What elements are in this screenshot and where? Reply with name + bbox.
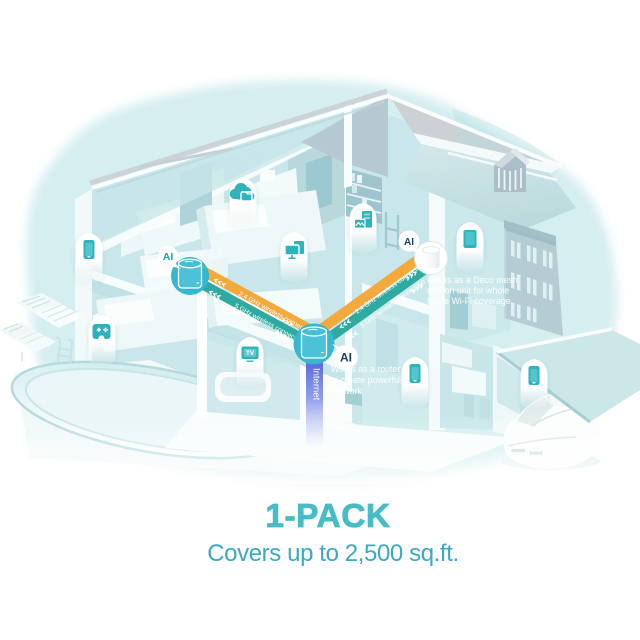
svg-text:network: network (331, 386, 362, 396)
svg-text:Covers up to 2,500 sq.ft.: Covers up to 2,500 sq.ft. (207, 540, 458, 567)
svg-text:Internet: Internet (311, 368, 322, 401)
svg-text:AI: AI (404, 237, 414, 248)
svg-text:to create powerful: to create powerful (331, 375, 401, 385)
svg-text:Works as a router: Works as a router (331, 364, 400, 374)
svg-text:1-PACK: 1-PACK (265, 498, 390, 535)
svg-text:add-on unit for whole: add-on unit for whole (427, 286, 509, 296)
svg-text:Works as a Deco mesh: Works as a Deco mesh (427, 275, 518, 285)
svg-text:TV: TV (246, 351, 254, 357)
svg-text:AI: AI (340, 351, 352, 365)
svg-text:AI: AI (163, 251, 174, 263)
svg-text:home Wi-Fi coverage: home Wi-Fi coverage (427, 296, 511, 306)
